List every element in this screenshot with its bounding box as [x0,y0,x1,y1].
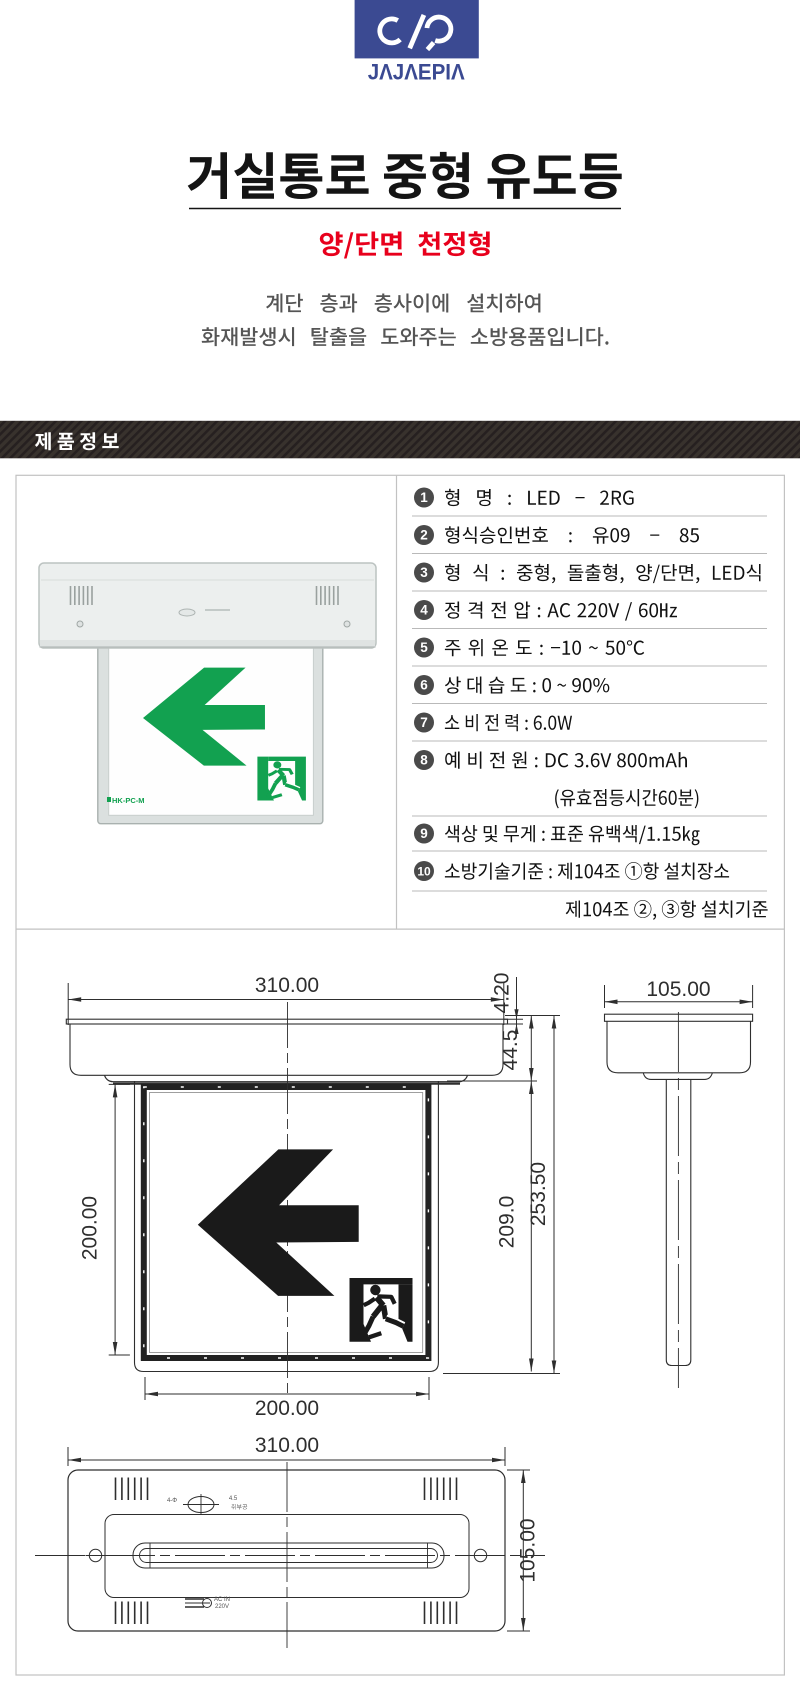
svg-text:310.00: 310.00 [255,1434,319,1457]
svg-text:4.20: 4.20 [491,973,514,1014]
svg-text:105.00: 105.00 [517,1518,540,1582]
svg-text:209.0: 209.0 [495,1196,518,1249]
svg-text:2: 2 [420,528,428,543]
svg-text:7: 7 [420,715,428,730]
svg-text:4.5: 4.5 [229,1496,238,1502]
svg-text:220V: 220V [215,1604,229,1610]
svg-text:5: 5 [420,640,428,655]
svg-text:AC IN: AC IN [214,1597,230,1603]
svg-text:200.00: 200.00 [79,1196,102,1260]
svg-text:200.00: 200.00 [255,1397,319,1420]
svg-text:1: 1 [420,490,428,505]
svg-text:8: 8 [420,753,428,768]
svg-text:44.5: 44.5 [499,1030,522,1071]
svg-text:3: 3 [420,565,428,580]
svg-text:4: 4 [420,603,428,618]
svg-text:6: 6 [420,678,428,693]
svg-text:9: 9 [420,826,428,841]
svg-text:4-Φ: 4-Φ [167,1498,177,1504]
svg-text:HK-PC-M: HK-PC-M [112,796,145,805]
svg-text:105.00: 105.00 [646,978,710,1001]
svg-text:JΛJΛEPIΛ: JΛJΛEPIΛ [368,60,465,85]
svg-text:253.50: 253.50 [527,1162,550,1226]
svg-text:10: 10 [417,865,431,879]
svg-text:310.00: 310.00 [255,974,319,997]
